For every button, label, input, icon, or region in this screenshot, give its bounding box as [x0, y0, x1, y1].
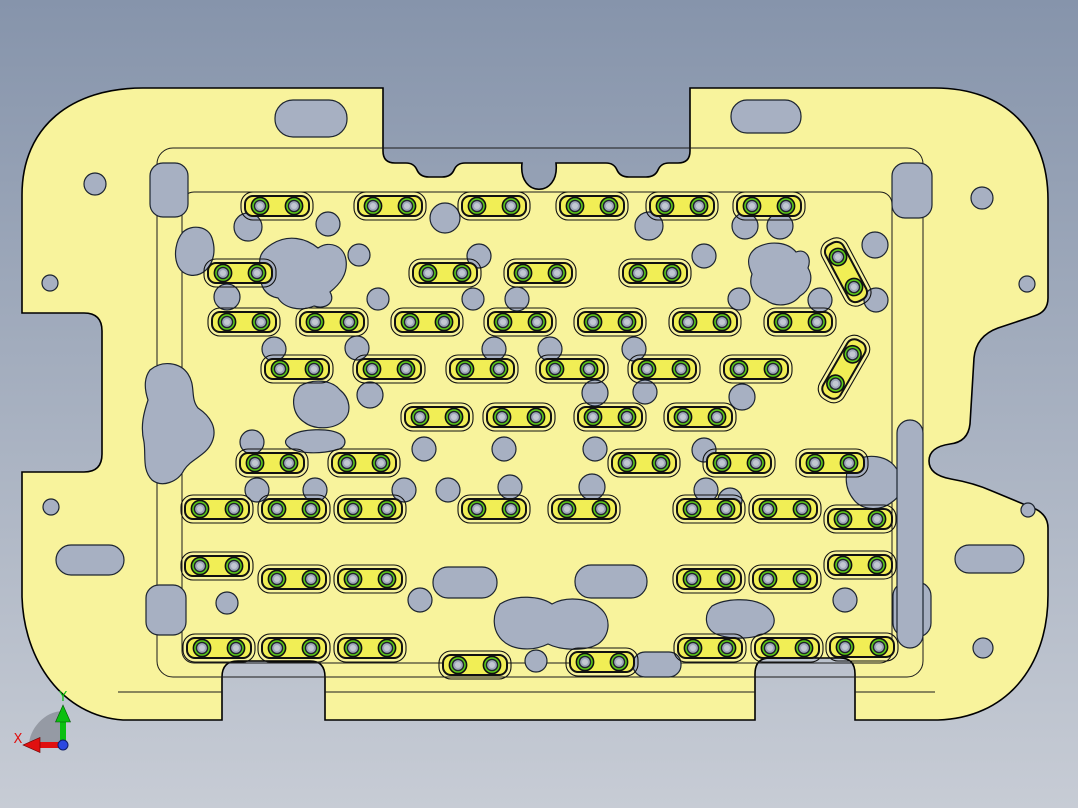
screw-head[interactable]	[252, 313, 269, 330]
screw-head[interactable]	[305, 360, 322, 377]
screw-head[interactable]	[546, 360, 563, 377]
screw-center	[724, 645, 730, 651]
hole-circle[interactable]	[348, 244, 370, 266]
screw-center	[842, 644, 848, 650]
screw-head[interactable]	[840, 454, 857, 471]
screw-head[interactable]	[453, 264, 470, 281]
screw-center	[350, 576, 356, 582]
hole-circle[interactable]	[729, 384, 755, 410]
screw-head[interactable]	[580, 360, 597, 377]
clamp-strip[interactable]	[556, 192, 628, 220]
screw-head[interactable]	[761, 639, 778, 656]
hole-circle[interactable]	[462, 288, 484, 310]
screw-center	[765, 506, 771, 512]
clamp-strip[interactable]	[720, 355, 792, 383]
hole-circle[interactable]	[216, 592, 238, 614]
screw-center	[384, 645, 390, 651]
screw-head[interactable]	[227, 639, 244, 656]
clamp-strip[interactable]	[664, 403, 736, 431]
screw-center	[496, 366, 502, 372]
screw-head[interactable]	[494, 313, 511, 330]
hole-circle[interactable]	[345, 336, 369, 360]
screw-center	[689, 506, 695, 512]
screw-head[interactable]	[774, 313, 791, 330]
screw-head[interactable]	[836, 638, 853, 655]
screw-center	[606, 203, 612, 209]
clamp-strip[interactable]	[703, 449, 775, 477]
screw-head[interactable]	[566, 197, 583, 214]
screw-center	[685, 319, 691, 325]
hole-circle[interactable]	[234, 213, 262, 241]
screw-head[interactable]	[302, 500, 319, 517]
screw-center	[770, 366, 776, 372]
screw-center	[714, 414, 720, 420]
screw-center	[499, 414, 505, 420]
screw-head[interactable]	[445, 408, 462, 425]
clamp-strip[interactable]	[536, 355, 608, 383]
screw-center	[690, 645, 696, 651]
screw-center	[231, 506, 237, 512]
screw-center	[876, 644, 882, 650]
screw-head[interactable]	[397, 360, 414, 377]
screw-center	[378, 460, 384, 466]
blob-cutout[interactable]	[494, 597, 608, 649]
screw-center	[552, 366, 558, 372]
screw-head[interactable]	[592, 500, 609, 517]
screw-center	[384, 506, 390, 512]
screw-head[interactable]	[618, 454, 635, 471]
screw-center	[254, 270, 260, 276]
clamp-strip[interactable]	[674, 634, 746, 662]
clamp-strip[interactable]	[548, 495, 620, 523]
clamp-strip[interactable]	[258, 634, 330, 662]
hole-circle[interactable]	[622, 337, 646, 361]
screw-center	[312, 319, 318, 325]
screw-center	[846, 460, 852, 466]
screw-center	[252, 460, 258, 466]
hole-circle[interactable]	[833, 588, 857, 612]
hole-circle[interactable]	[692, 244, 716, 268]
hole-circle[interactable]	[367, 288, 389, 310]
screw-center	[658, 460, 664, 466]
screw-center	[765, 576, 771, 582]
clamp-strip[interactable]	[483, 403, 555, 431]
screw-head[interactable]	[684, 639, 701, 656]
screw-center	[308, 506, 314, 512]
screw-center	[723, 506, 729, 512]
hole-circle[interactable]	[316, 212, 340, 236]
slot-hole[interactable]	[56, 545, 124, 575]
screw-center	[753, 460, 759, 466]
screw-center	[719, 319, 725, 325]
screw-head[interactable]	[708, 408, 725, 425]
screw-head[interactable]	[793, 570, 810, 587]
screw-head[interactable]	[514, 264, 531, 281]
hole-circle[interactable]	[583, 437, 607, 461]
screw-head[interactable]	[411, 408, 428, 425]
screw-center	[874, 562, 880, 568]
screw-center	[474, 203, 480, 209]
screw-center	[582, 659, 588, 665]
screw-head[interactable]	[246, 454, 263, 471]
clamp-strip[interactable]	[824, 551, 896, 579]
screw-head[interactable]	[248, 264, 265, 281]
screw-head[interactable]	[483, 656, 500, 673]
slot-hole[interactable]	[897, 420, 923, 648]
screw-center	[624, 460, 630, 466]
screw-head[interactable]	[344, 500, 361, 517]
screw-head[interactable]	[419, 264, 436, 281]
screw-head[interactable]	[225, 500, 242, 517]
slot-hole[interactable]	[575, 565, 647, 598]
slot-hole[interactable]	[275, 100, 347, 137]
screw-head[interactable]	[683, 500, 700, 517]
screw-center	[417, 414, 423, 420]
screw-center	[669, 270, 675, 276]
screw-head[interactable]	[610, 653, 627, 670]
screw-head[interactable]	[372, 454, 389, 471]
clamp-strip[interactable]	[574, 308, 646, 336]
screw-center	[384, 576, 390, 582]
screw-head[interactable]	[218, 313, 235, 330]
screw-center	[719, 460, 725, 466]
triad-x-label: X	[14, 732, 23, 747]
slot-hole[interactable]	[955, 545, 1024, 573]
hole-circle[interactable]	[214, 284, 240, 310]
screw-head[interactable]	[302, 570, 319, 587]
screw-head[interactable]	[618, 408, 635, 425]
screw-head[interactable]	[672, 360, 689, 377]
screw-head[interactable]	[502, 500, 519, 517]
clamp-strip[interactable]	[619, 259, 691, 287]
screw-center	[799, 506, 805, 512]
screw-head[interactable]	[528, 313, 545, 330]
screw-head[interactable]	[401, 313, 418, 330]
hole-circle[interactable]	[1019, 276, 1035, 292]
screw-head[interactable]	[268, 500, 285, 517]
screw-center	[696, 203, 702, 209]
screw-center	[344, 460, 350, 466]
hole-circle[interactable]	[971, 187, 993, 209]
slot-hole[interactable]	[892, 163, 932, 218]
clamp-strip[interactable]	[446, 355, 518, 383]
screw-head[interactable]	[717, 570, 734, 587]
clamp-strip[interactable]	[673, 565, 745, 593]
hole-circle[interactable]	[862, 232, 888, 258]
screw-center	[564, 506, 570, 512]
clamp-strip[interactable]	[334, 495, 406, 523]
screw-head[interactable]	[280, 454, 297, 471]
screw-head[interactable]	[435, 313, 452, 330]
screw-head[interactable]	[663, 264, 680, 281]
cad-viewport[interactable]: X Y	[0, 0, 1078, 808]
clamp-strip[interactable]	[236, 449, 308, 477]
screw-head[interactable]	[795, 639, 812, 656]
screw-center	[635, 270, 641, 276]
clamp-strip[interactable]	[328, 449, 400, 477]
screw-center	[291, 203, 297, 209]
screw-center	[277, 366, 283, 372]
screw-center	[678, 366, 684, 372]
screw-head[interactable]	[271, 360, 288, 377]
screw-center	[508, 506, 514, 512]
clamp-strip[interactable]	[204, 259, 276, 287]
screw-center	[586, 366, 592, 372]
screw-center	[199, 645, 205, 651]
screw-center	[233, 645, 239, 651]
screw-head[interactable]	[743, 197, 760, 214]
screw-center	[572, 203, 578, 209]
screw-center	[407, 319, 413, 325]
screw-center	[814, 319, 820, 325]
screw-center	[780, 319, 786, 325]
clamp-strip[interactable]	[484, 308, 556, 336]
screw-center	[624, 319, 630, 325]
screw-head[interactable]	[730, 360, 747, 377]
screw-center	[231, 563, 237, 569]
screw-center	[474, 506, 480, 512]
hole-circle[interactable]	[525, 650, 547, 672]
screw-head[interactable]	[600, 197, 617, 214]
screw-head[interactable]	[378, 570, 395, 587]
screw-head[interactable]	[378, 639, 395, 656]
clamp-strip[interactable]	[504, 259, 576, 287]
screw-head[interactable]	[834, 556, 851, 573]
triad-z-origin[interactable]	[58, 740, 68, 750]
clamp-strip[interactable]	[258, 565, 330, 593]
screw-center	[689, 576, 695, 582]
screw-center	[533, 414, 539, 420]
hole-circle[interactable]	[43, 499, 59, 515]
screw-center	[257, 203, 263, 209]
clamp-strip[interactable]	[628, 355, 700, 383]
slot-hole[interactable]	[146, 585, 186, 635]
clamp-strip[interactable]	[458, 495, 530, 523]
hole-circle[interactable]	[430, 203, 460, 233]
clamp-strip[interactable]	[751, 634, 823, 662]
screw-head[interactable]	[340, 313, 357, 330]
screw-head[interactable]	[868, 556, 885, 573]
screw-head[interactable]	[456, 360, 473, 377]
clamp-strip[interactable]	[208, 308, 280, 336]
clamp-strip[interactable]	[439, 651, 511, 679]
screw-center	[489, 662, 495, 668]
screw-head[interactable]	[493, 408, 510, 425]
screw-center	[723, 576, 729, 582]
clamp-strip[interactable]	[608, 449, 680, 477]
screw-center	[220, 270, 226, 276]
screw-head[interactable]	[306, 313, 323, 330]
screw-head[interactable]	[713, 454, 730, 471]
screw-head[interactable]	[777, 197, 794, 214]
screw-head[interactable]	[344, 639, 361, 656]
screw-center	[590, 319, 596, 325]
screw-head[interactable]	[364, 197, 381, 214]
clamp-strip[interactable]	[354, 192, 426, 220]
screw-head[interactable]	[527, 408, 544, 425]
screw-center	[662, 203, 668, 209]
clamp-strip[interactable]	[749, 495, 821, 523]
screw-head[interactable]	[344, 570, 361, 587]
hole-circle[interactable]	[357, 382, 383, 408]
hole-circle[interactable]	[412, 437, 436, 461]
clamp-strip[interactable]	[458, 192, 530, 220]
clamp-strip[interactable]	[401, 403, 473, 431]
screw-head[interactable]	[808, 313, 825, 330]
screw-head[interactable]	[764, 360, 781, 377]
screw-head[interactable]	[576, 653, 593, 670]
clamp-strip[interactable]	[749, 565, 821, 593]
screw-head[interactable]	[638, 360, 655, 377]
screw-head[interactable]	[679, 313, 696, 330]
slot-hole[interactable]	[150, 163, 188, 217]
clamp-strip[interactable]	[669, 308, 741, 336]
clamp-strip[interactable]	[646, 192, 718, 220]
hole-circle[interactable]	[728, 288, 750, 310]
screw-head[interactable]	[502, 197, 519, 214]
clamp-strip[interactable]	[258, 495, 330, 523]
hole-circle[interactable]	[1021, 503, 1035, 517]
screw-head[interactable]	[548, 264, 565, 281]
hole-circle[interactable]	[482, 337, 506, 361]
clamp-strip[interactable]	[296, 308, 368, 336]
screw-head[interactable]	[584, 408, 601, 425]
screw-head[interactable]	[302, 639, 319, 656]
screw-head[interactable]	[674, 408, 691, 425]
screw-head[interactable]	[629, 264, 646, 281]
screw-head[interactable]	[285, 197, 302, 214]
clamp-strip[interactable]	[183, 634, 255, 662]
hole-circle[interactable]	[505, 287, 529, 311]
screw-head[interactable]	[193, 639, 210, 656]
hole-circle[interactable]	[240, 430, 264, 454]
screw-head[interactable]	[713, 313, 730, 330]
screw-head[interactable]	[834, 510, 851, 527]
slot-hole[interactable]	[633, 652, 681, 677]
screw-head[interactable]	[490, 360, 507, 377]
clamp-strip[interactable]	[796, 449, 868, 477]
viewport-canvas[interactable]: X Y	[0, 0, 1078, 808]
screw-head[interactable]	[251, 197, 268, 214]
blob-cutout[interactable]	[749, 243, 811, 305]
screw-center	[451, 414, 457, 420]
hole-circle[interactable]	[492, 437, 516, 461]
clamp-strip[interactable]	[673, 495, 745, 523]
hole-circle[interactable]	[408, 588, 432, 612]
screw-center	[749, 203, 755, 209]
screw-head[interactable]	[378, 500, 395, 517]
screw-head[interactable]	[268, 570, 285, 587]
screw-center	[534, 319, 540, 325]
screw-head[interactable]	[747, 454, 764, 471]
screw-head[interactable]	[793, 500, 810, 517]
screw-center	[590, 414, 596, 420]
screw-head[interactable]	[806, 454, 823, 471]
screw-center	[767, 645, 773, 651]
screw-head[interactable]	[868, 510, 885, 527]
screw-head[interactable]	[870, 638, 887, 655]
hole-circle[interactable]	[973, 638, 993, 658]
screw-head[interactable]	[191, 557, 208, 574]
triad-y-label: Y	[58, 690, 67, 705]
screw-center	[404, 203, 410, 209]
screw-center	[508, 203, 514, 209]
screw-head[interactable]	[656, 197, 673, 214]
clamp-strip[interactable]	[733, 192, 805, 220]
screw-head[interactable]	[618, 313, 635, 330]
clamp-strip[interactable]	[261, 355, 333, 383]
screw-head[interactable]	[398, 197, 415, 214]
clamp-strip[interactable]	[334, 634, 406, 662]
screw-head[interactable]	[584, 313, 601, 330]
screw-head[interactable]	[683, 570, 700, 587]
screw-center	[425, 270, 431, 276]
screw-center	[598, 506, 604, 512]
clamp-strip[interactable]	[824, 505, 896, 533]
hole-circle[interactable]	[633, 380, 657, 404]
screw-head[interactable]	[690, 197, 707, 214]
screw-center	[274, 576, 280, 582]
clamp-strip[interactable]	[181, 495, 253, 523]
screw-head[interactable]	[214, 264, 231, 281]
screw-head[interactable]	[225, 557, 242, 574]
screw-center	[874, 516, 880, 522]
screw-head[interactable]	[468, 197, 485, 214]
screw-center	[455, 662, 461, 668]
screw-head[interactable]	[449, 656, 466, 673]
clamp-strip[interactable]	[826, 633, 898, 661]
screw-head[interactable]	[363, 360, 380, 377]
screw-head[interactable]	[191, 500, 208, 517]
screw-head[interactable]	[718, 639, 735, 656]
hole-circle[interactable]	[582, 380, 608, 406]
screw-head[interactable]	[468, 500, 485, 517]
clamp-strip[interactable]	[391, 308, 463, 336]
screw-center	[783, 203, 789, 209]
screw-center	[350, 506, 356, 512]
screw-head[interactable]	[652, 454, 669, 471]
clamp-strip[interactable]	[764, 308, 836, 336]
clamp-strip[interactable]	[353, 355, 425, 383]
screw-center	[311, 366, 317, 372]
hole-circle[interactable]	[436, 478, 460, 502]
screw-center	[286, 460, 292, 466]
hole-circle[interactable]	[84, 173, 106, 195]
screw-center	[258, 319, 264, 325]
blob-cutout[interactable]	[706, 600, 774, 638]
slot-hole[interactable]	[433, 567, 497, 598]
screw-center	[308, 645, 314, 651]
screw-head[interactable]	[717, 500, 734, 517]
clamp-strip[interactable]	[566, 648, 638, 676]
screw-center	[520, 270, 526, 276]
screw-center	[812, 460, 818, 466]
screw-head[interactable]	[338, 454, 355, 471]
screw-head[interactable]	[558, 500, 575, 517]
screw-center	[500, 319, 506, 325]
clamp-strip[interactable]	[334, 565, 406, 593]
clamp-strip[interactable]	[181, 552, 253, 580]
clamp-strip[interactable]	[241, 192, 313, 220]
clamp-strip[interactable]	[574, 403, 646, 431]
slot-hole[interactable]	[731, 100, 801, 133]
screw-head[interactable]	[759, 570, 776, 587]
screw-head[interactable]	[759, 500, 776, 517]
hole-circle[interactable]	[42, 275, 58, 291]
hole-circle[interactable]	[579, 474, 605, 500]
clamp-strip[interactable]	[409, 259, 481, 287]
screw-head[interactable]	[268, 639, 285, 656]
